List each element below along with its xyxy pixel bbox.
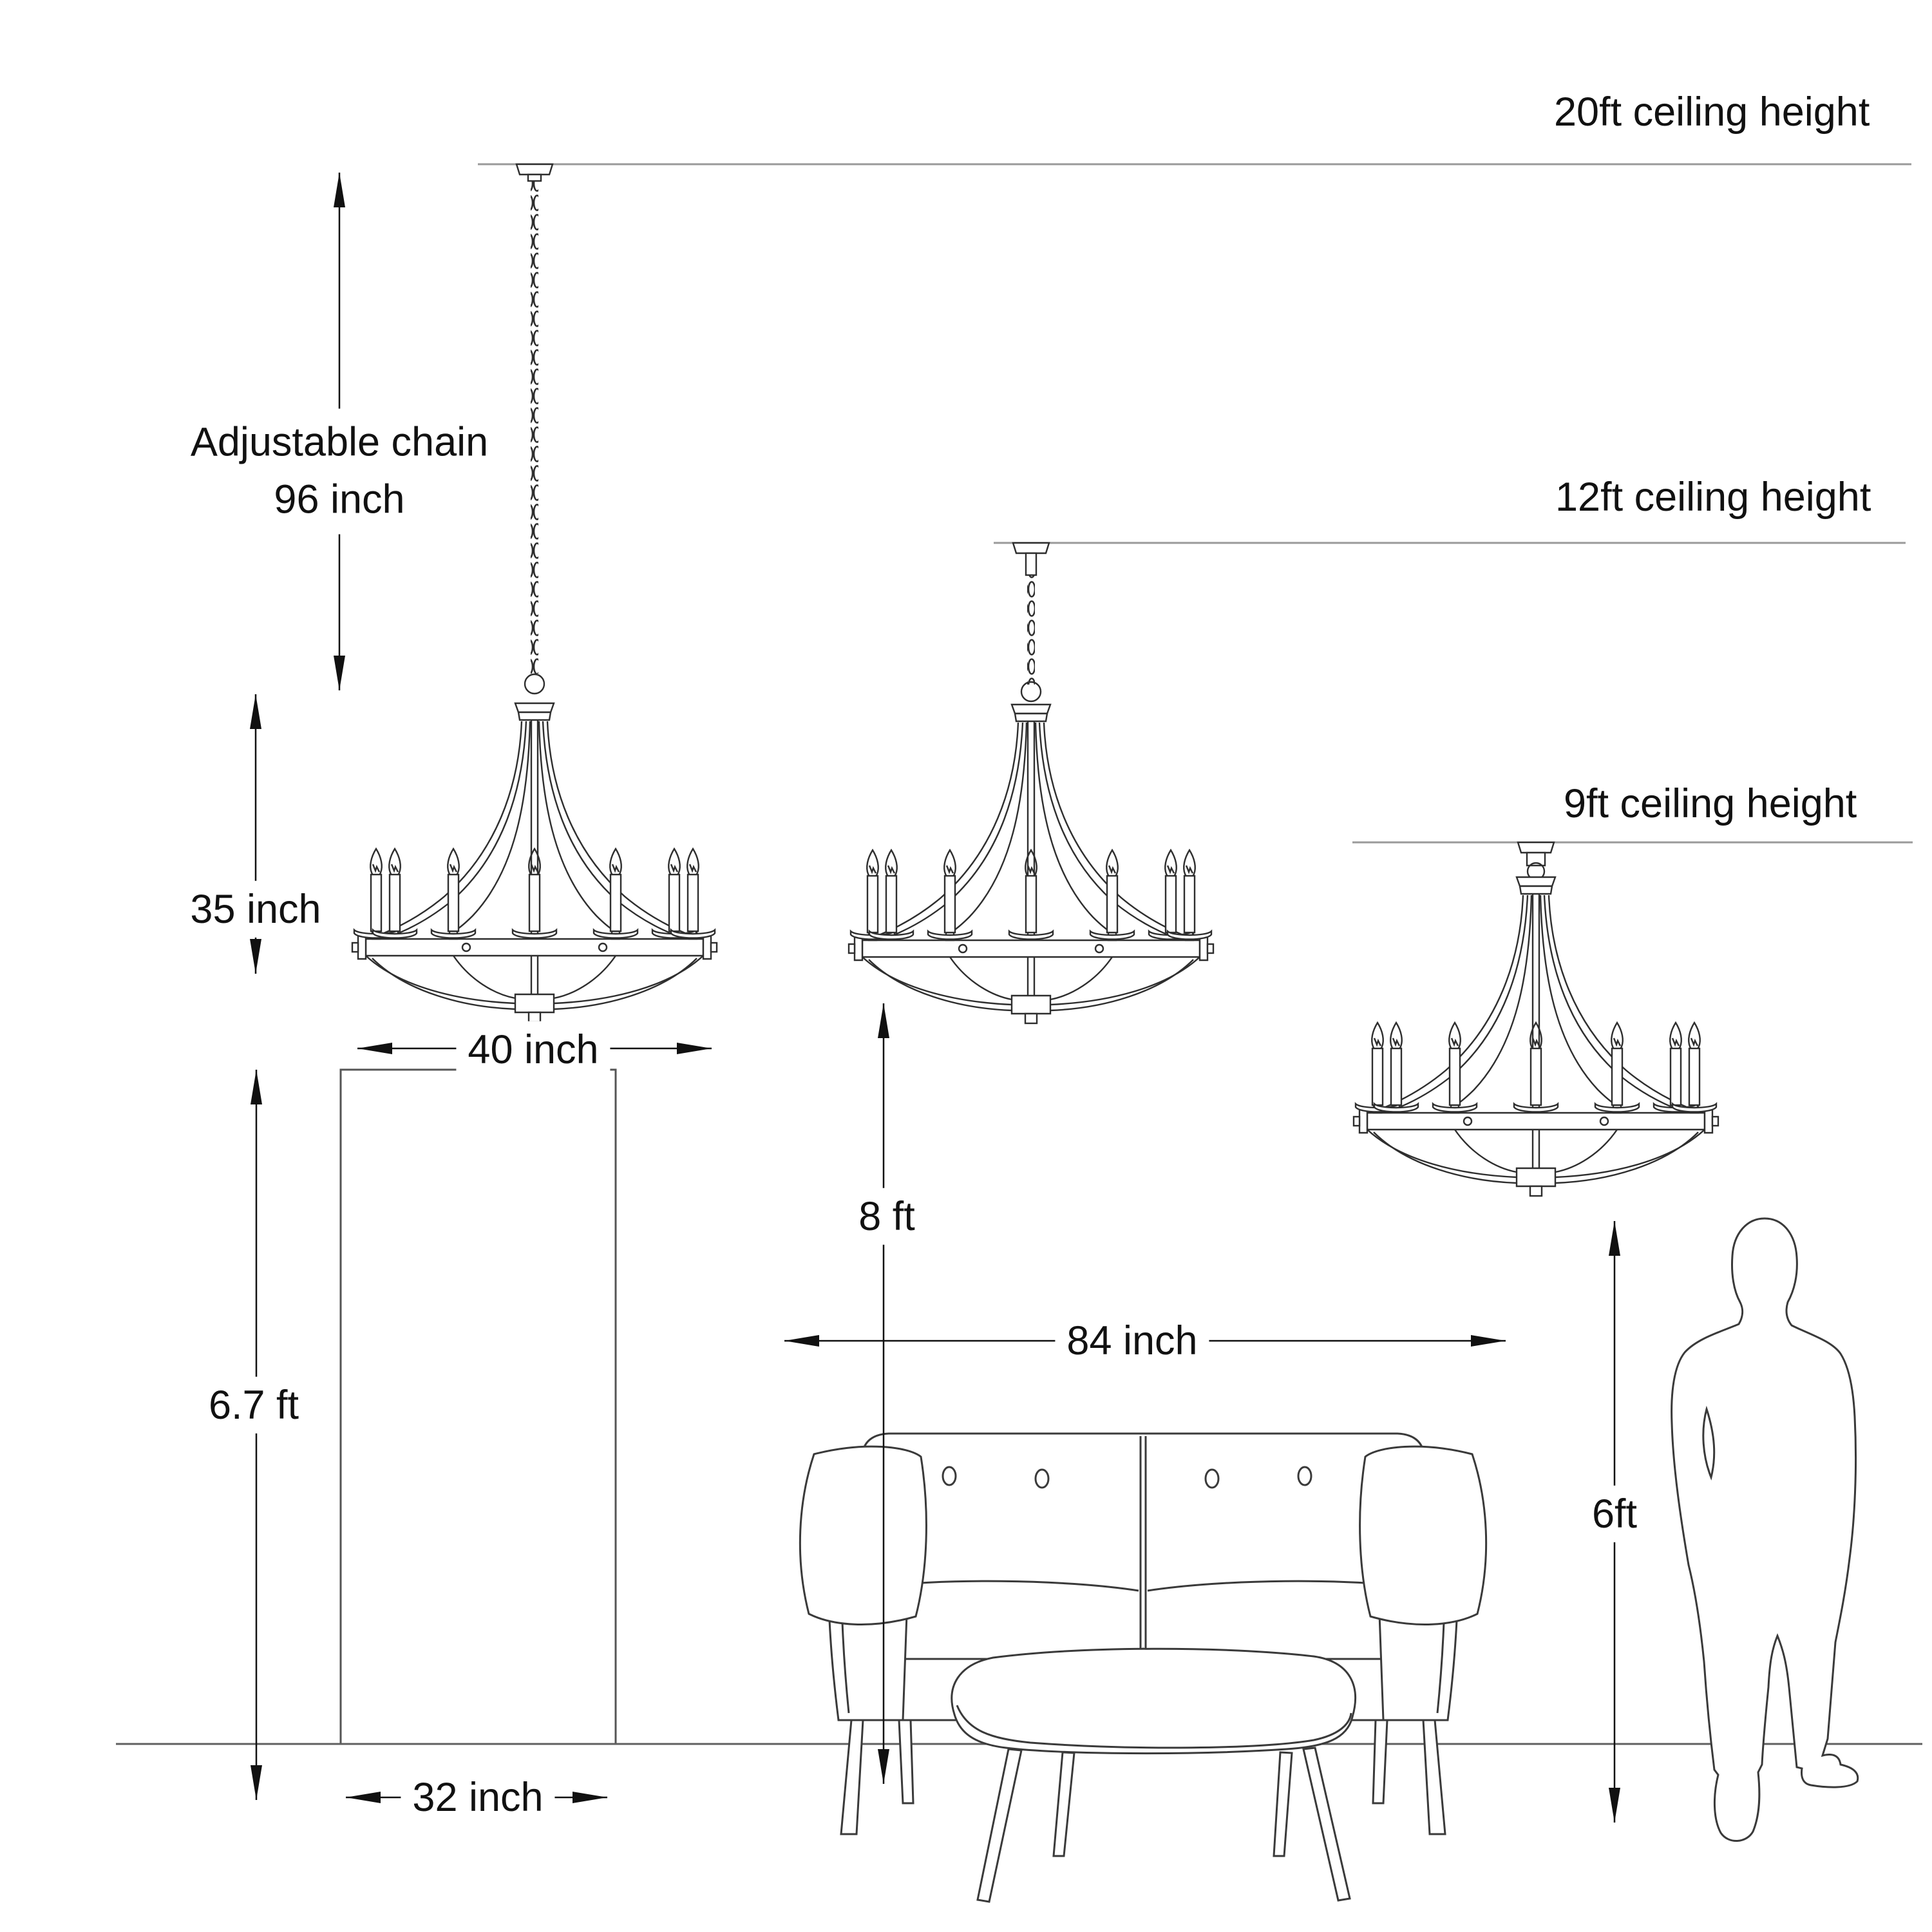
diagram-line-art xyxy=(0,0,1932,1932)
floor-clearance-label: 8 ft xyxy=(847,1188,927,1245)
chandelier-9ft-body xyxy=(1354,877,1718,1196)
chandelier-size-diagram: 20ft ceiling height 12ft ceiling height … xyxy=(0,0,1932,1932)
sofa-drawing xyxy=(800,1434,1486,1834)
fixture-width-label: 40 inch xyxy=(456,1021,610,1078)
chandelier-20ft-drawing xyxy=(352,164,717,1022)
door-outline xyxy=(341,1070,616,1744)
fixture-height-label: 35 inch xyxy=(178,881,332,938)
chandelier-12ft-body xyxy=(849,705,1213,1023)
ceiling-12ft-label: 12ft ceiling height xyxy=(1555,474,1871,520)
coffee-table-drawing xyxy=(952,1649,1356,1902)
ceiling-9ft-label: 9ft ceiling height xyxy=(1564,781,1857,827)
sofa-width-label: 84 inch xyxy=(1055,1312,1209,1369)
door-height-dimension xyxy=(251,1070,262,1800)
chain-dimension-label: Adjustable chain 96 inch xyxy=(179,409,500,535)
person-height-label: 6ft xyxy=(1580,1486,1649,1542)
person-silhouette xyxy=(1672,1218,1858,1841)
chandelier-20ft-body xyxy=(352,703,717,1022)
chain-label-line1: Adjustable chain xyxy=(191,414,488,471)
door-width-label: 32 inch xyxy=(401,1769,554,1826)
ceiling-20ft-label: 20ft ceiling height xyxy=(1554,89,1870,135)
chandelier-9ft-drawing xyxy=(1354,842,1718,1196)
door-height-label: 6.7 ft xyxy=(197,1377,310,1434)
chandelier-12ft-drawing xyxy=(849,543,1213,1023)
chain-label-line2: 96 inch xyxy=(191,471,488,529)
